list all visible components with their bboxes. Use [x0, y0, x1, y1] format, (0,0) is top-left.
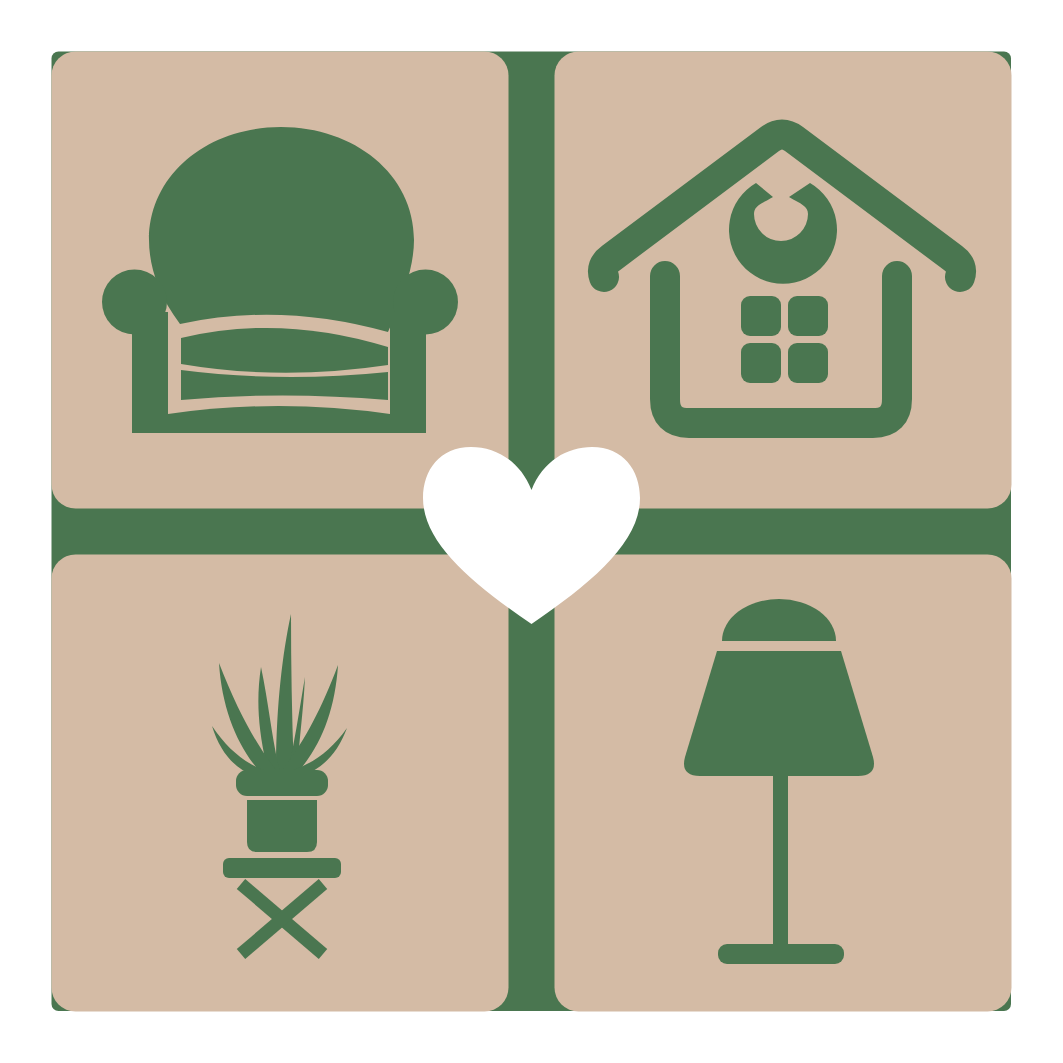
- window-pane: [788, 343, 828, 383]
- armchair-base-bar: [168, 406, 390, 433]
- window-pane: [741, 343, 781, 383]
- lamp-base: [718, 944, 844, 964]
- armchair-leg-right: [390, 312, 426, 433]
- logo-canvas: [0, 0, 1063, 1063]
- stool-top: [223, 858, 341, 878]
- pot-body: [247, 800, 317, 852]
- pot-rim: [236, 770, 328, 796]
- lamp-shade-body: [684, 651, 874, 776]
- lamp-stem: [773, 776, 788, 946]
- window-pane: [741, 296, 781, 336]
- window-pane: [788, 296, 828, 336]
- home-decor-logo: [0, 0, 1063, 1063]
- armchair-leg-left: [132, 312, 168, 433]
